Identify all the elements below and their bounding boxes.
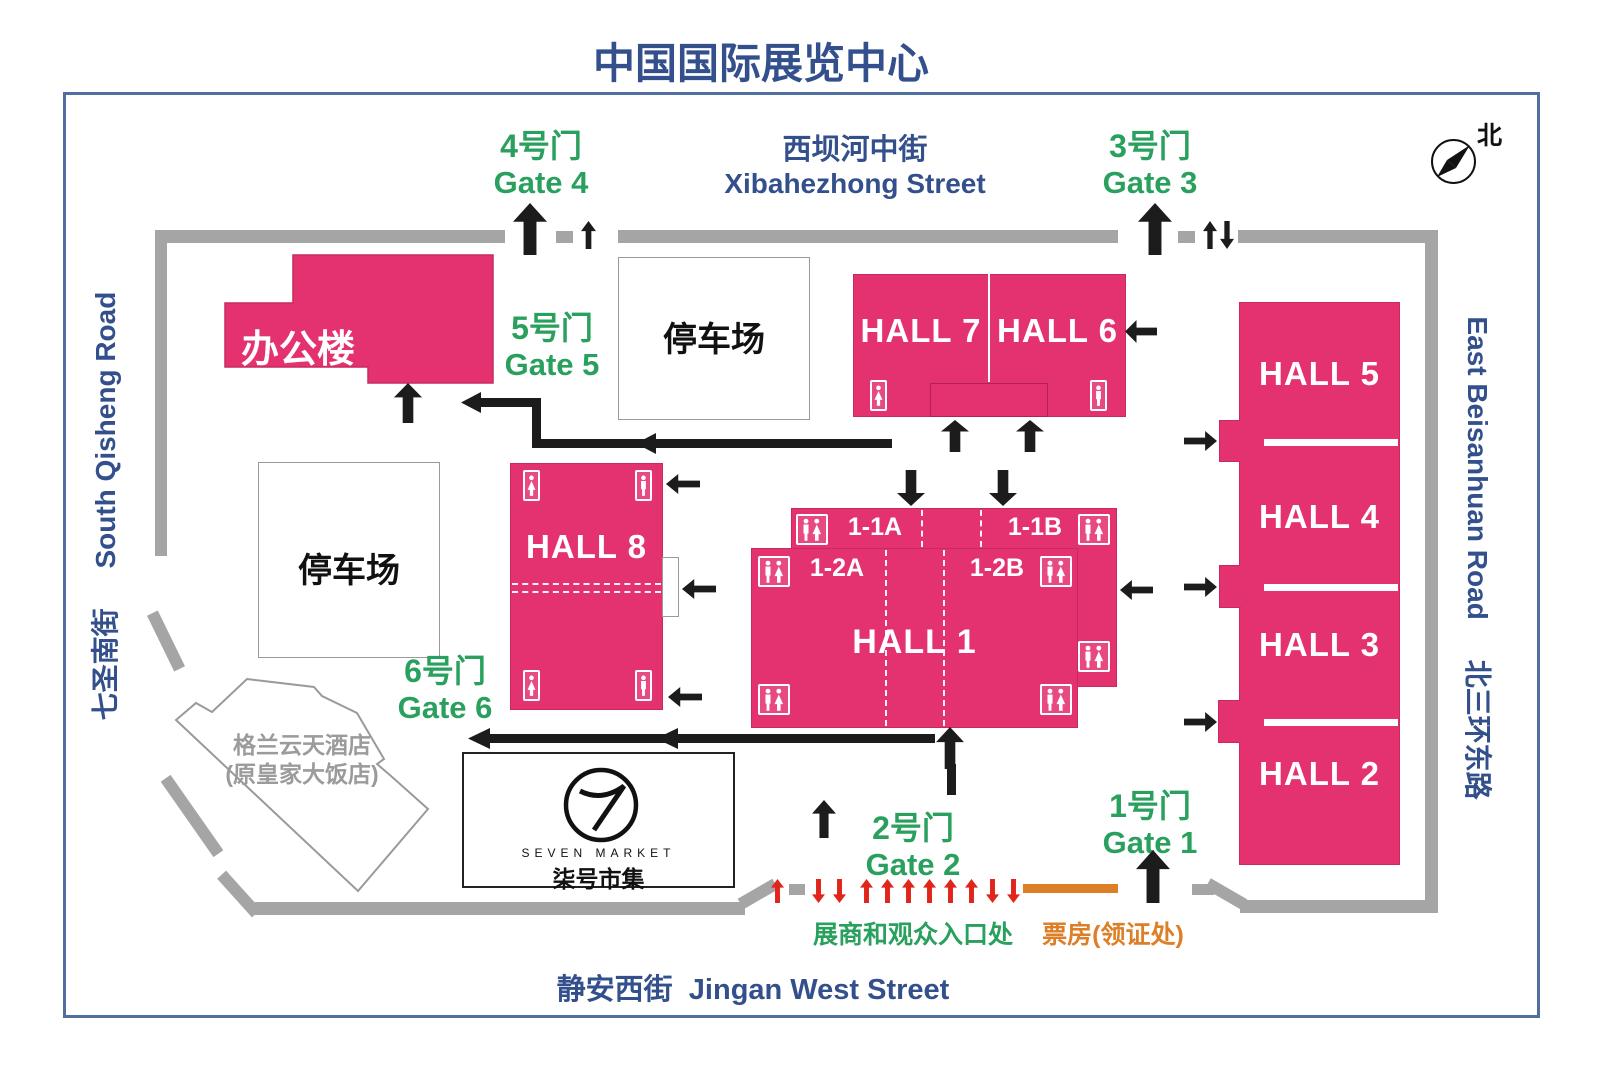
path-segment bbox=[947, 764, 956, 795]
hall-3-2-separator bbox=[1264, 719, 1398, 726]
seven-market-zh-label: 柒号市集 bbox=[464, 860, 733, 894]
gate-1-label: 1号门 Gate 1 bbox=[1080, 788, 1220, 860]
hall-8-dashed-line-2 bbox=[512, 591, 661, 593]
hall-4-label: HALL 4 bbox=[1239, 498, 1400, 536]
compass-north-label: 北 bbox=[1477, 116, 1502, 152]
exhibition-center-map: 中国国际展览中心 西坝河中街 Xibahezhong Street 静安西街 J… bbox=[0, 0, 1600, 1074]
hotel-name-line1: 格兰云天酒店 bbox=[192, 731, 412, 760]
gate-5-label: 5号门 Gate 5 bbox=[482, 310, 622, 382]
street-left-label: 七圣南街 South Qisheng Road bbox=[84, 256, 124, 756]
section-1-1b-label: 1-1B bbox=[990, 513, 1080, 542]
restroom-unisex-icon bbox=[796, 514, 828, 545]
restroom-unisex-icon bbox=[758, 684, 790, 715]
hall-3-label: HALL 3 bbox=[1239, 626, 1400, 664]
gate-6-en: Gate 6 bbox=[375, 690, 515, 726]
gate-6-zh: 6号门 bbox=[375, 653, 515, 690]
hall-8-side-room bbox=[662, 557, 679, 617]
street-bottom-zh: 静安西街 bbox=[557, 974, 673, 1006]
road-top-dash-1 bbox=[556, 231, 573, 243]
restroom-male-icon bbox=[635, 470, 652, 501]
gate-3-en: Gate 3 bbox=[1080, 165, 1220, 201]
street-left-en: South Qisheng Road bbox=[90, 292, 121, 569]
restroom-female-icon bbox=[523, 670, 540, 701]
seven-market-building: SEVEN MARKET 柒号市集 bbox=[462, 752, 735, 888]
hall-column-tab-1 bbox=[1219, 420, 1241, 462]
hall-1-upper-dash-1 bbox=[921, 510, 923, 547]
seven-market-en-label: SEVEN MARKET bbox=[464, 846, 733, 860]
hall-5-4-separator bbox=[1264, 439, 1398, 446]
gate-2-en: Gate 2 bbox=[843, 847, 983, 883]
section-1-2a-label: 1-2A bbox=[792, 554, 882, 583]
hall-1-label: HALL 1 bbox=[751, 623, 1078, 662]
road-bottom-right bbox=[1240, 900, 1438, 913]
office-label: 办公楼 bbox=[228, 318, 368, 373]
restroom-unisex-icon bbox=[1040, 684, 1072, 715]
hall-4-3-separator bbox=[1264, 584, 1398, 591]
road-entrance-dash bbox=[789, 884, 805, 895]
hall-8-label: HALL 8 bbox=[510, 528, 663, 566]
ticket-office-label: 票房(领证处) bbox=[1013, 915, 1213, 951]
compass-needle-icon bbox=[1430, 138, 1477, 185]
street-bottom-label: 静安西街 Jingan West Street bbox=[553, 966, 953, 1008]
compass bbox=[1430, 138, 1477, 185]
street-top-label: 西坝河中街 Xibahezhong Street bbox=[705, 126, 1005, 200]
parking-top-label: 停车场 bbox=[618, 312, 810, 361]
gate-4-zh: 4号门 bbox=[471, 128, 611, 165]
hall-5-label: HALL 5 bbox=[1239, 355, 1400, 393]
hall-2-label: HALL 2 bbox=[1239, 755, 1400, 793]
gate-4-en: Gate 4 bbox=[471, 165, 611, 201]
gate-5-en: Gate 5 bbox=[482, 347, 622, 383]
restroom-unisex-icon bbox=[758, 556, 790, 587]
parking-left-label: 停车场 bbox=[258, 543, 440, 592]
road-top-2 bbox=[618, 230, 1118, 243]
gate-6-label: 6号门 Gate 6 bbox=[375, 653, 515, 725]
restroom-unisex-icon bbox=[1040, 556, 1072, 587]
hall-column-tab-2 bbox=[1219, 565, 1241, 608]
restroom-unisex-icon bbox=[1078, 641, 1110, 672]
gate-1-zh: 1号门 bbox=[1080, 788, 1220, 825]
hall-7-6-inner-room bbox=[930, 383, 1048, 417]
hall-1-upper-dash-2 bbox=[980, 510, 982, 547]
gate-5-zh: 5号门 bbox=[482, 310, 622, 347]
path-segment bbox=[490, 734, 935, 743]
street-right-label: East Beisanhuan Road 北三环东路 bbox=[1459, 278, 1499, 838]
hotel-label: 格兰云天酒店 (原皇家大饭店) bbox=[192, 731, 412, 789]
gate-2-label: 2号门 Gate 2 bbox=[843, 810, 983, 882]
road-right bbox=[1425, 230, 1438, 913]
section-1-2b-label: 1-2B bbox=[952, 554, 1042, 583]
hall-6-label: HALL 6 bbox=[989, 312, 1126, 350]
street-top-zh: 西坝河中街 bbox=[705, 126, 1005, 168]
hall-8-dashed-line-1 bbox=[512, 583, 661, 585]
hall-7-label: HALL 7 bbox=[853, 312, 989, 350]
gate-3-zh: 3号门 bbox=[1080, 128, 1220, 165]
path-segment bbox=[532, 439, 892, 448]
section-1-1a-label: 1-1A bbox=[830, 513, 920, 542]
seven-market-logo-icon bbox=[562, 766, 640, 844]
restroom-female-icon bbox=[870, 380, 887, 411]
road-top-dash-2 bbox=[1178, 231, 1195, 243]
street-right-zh: 北三环东路 bbox=[1462, 660, 1493, 800]
restroom-male-icon bbox=[1090, 380, 1107, 411]
hall-column-tab-3 bbox=[1218, 700, 1240, 743]
road-left bbox=[155, 230, 167, 556]
street-top-en: Xibahezhong Street bbox=[705, 168, 1005, 200]
street-right-en: East Beisanhuan Road bbox=[1462, 316, 1493, 619]
ticket-office-line bbox=[1023, 884, 1118, 893]
gate-4-label: 4号门 Gate 4 bbox=[471, 128, 611, 200]
restroom-female-icon bbox=[523, 470, 540, 501]
street-left-zh: 七圣南街 bbox=[90, 608, 121, 720]
gate-3-label: 3号门 Gate 3 bbox=[1080, 128, 1220, 200]
hotel-name-line2: (原皇家大饭店) bbox=[192, 760, 412, 789]
road-top-1 bbox=[155, 230, 505, 243]
restroom-male-icon bbox=[635, 670, 652, 701]
road-top-3 bbox=[1238, 230, 1438, 243]
gate-2-zh: 2号门 bbox=[843, 810, 983, 847]
street-bottom-en: Jingan West Street bbox=[689, 974, 950, 1006]
road-bottom-left bbox=[255, 902, 745, 915]
restroom-unisex-icon bbox=[1078, 514, 1110, 545]
